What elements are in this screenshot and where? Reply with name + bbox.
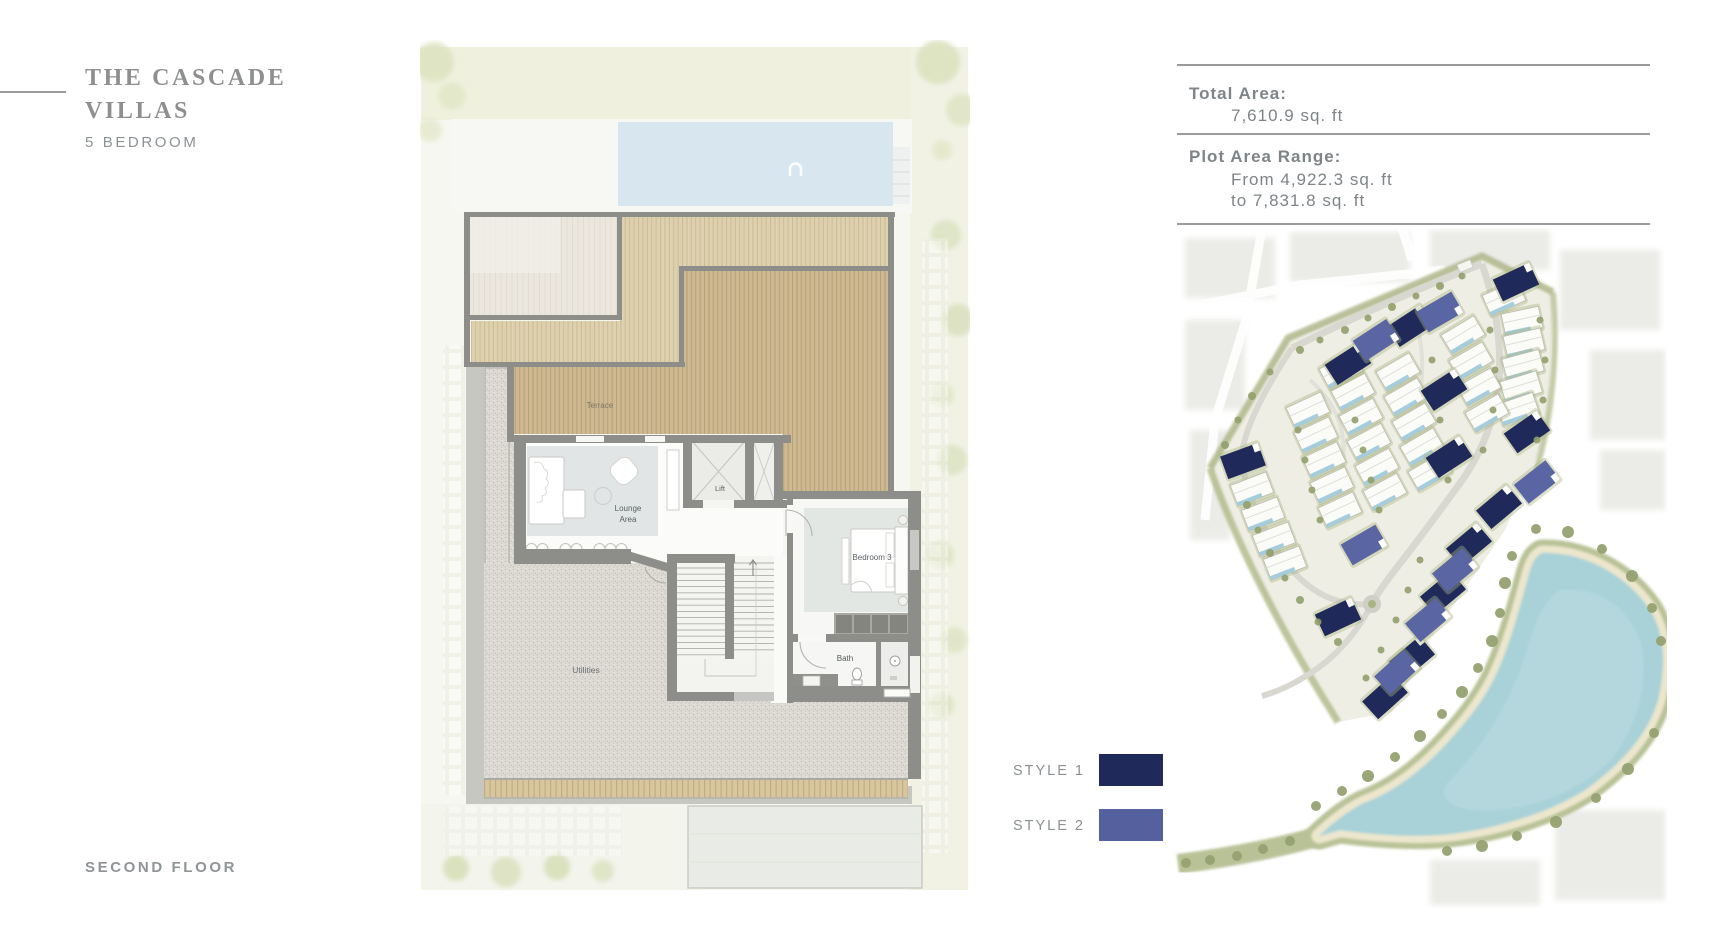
svg-text:Bedroom 3: Bedroom 3: [852, 553, 892, 562]
svg-text:Bath: Bath: [837, 654, 853, 663]
svg-text:Lounge: Lounge: [615, 504, 642, 513]
svg-text:Area: Area: [620, 515, 637, 524]
svg-text:Utilities: Utilities: [572, 665, 599, 675]
svg-text:Terrace: Terrace: [587, 401, 614, 410]
svg-text:Lift: Lift: [715, 484, 726, 493]
